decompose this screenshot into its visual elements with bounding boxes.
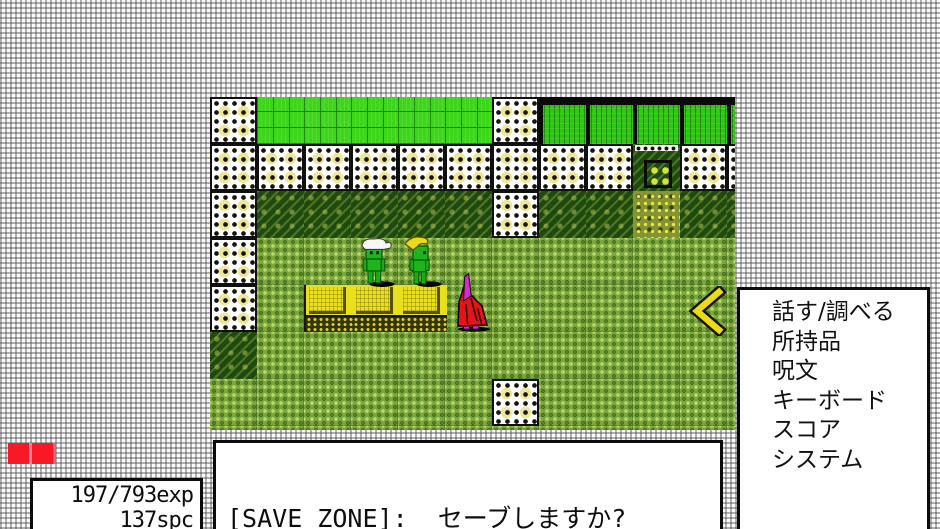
tile-wall	[210, 238, 257, 285]
tile-mid	[586, 238, 633, 285]
tile-table	[351, 285, 400, 332]
message-window: [SAVE ZONE]: セーブしますか?	[213, 440, 723, 529]
tile-dark	[398, 191, 445, 238]
menu-item-system[interactable]: システム	[740, 446, 927, 476]
tile-mid	[727, 332, 735, 379]
tile-mid	[257, 426, 304, 430]
tile-mid	[633, 332, 680, 379]
tile-mid	[586, 332, 633, 379]
tile-wall	[257, 144, 304, 191]
tile-dark	[210, 332, 257, 379]
menu-item-keyboard[interactable]: キーボード	[740, 387, 927, 417]
goblin-white-hair-sprite	[352, 237, 396, 287]
tile-hedge	[539, 97, 586, 144]
tile-wall	[210, 191, 257, 238]
tile-mid	[210, 379, 257, 426]
spc-value: 137spc	[33, 508, 200, 529]
tile-mid	[398, 426, 445, 430]
tile-mid	[680, 332, 727, 379]
tile-hedge	[586, 97, 633, 144]
tile-mid	[210, 426, 257, 430]
stats-window: 197/793exp 137spc	[30, 478, 203, 529]
tile-mid	[586, 379, 633, 426]
tile-mid	[492, 332, 539, 379]
tile-grass	[257, 97, 304, 144]
tile-dark	[586, 191, 633, 238]
tile-grass	[304, 97, 351, 144]
yellow-chevron-icon	[688, 286, 728, 336]
tile-speckle	[633, 191, 680, 238]
tile-mid	[539, 285, 586, 332]
tile-mid	[586, 285, 633, 332]
command-menu: 話す/調べる 所持品 呪文 キーボード スコア システム	[737, 287, 930, 529]
tile-wall	[304, 144, 351, 191]
hp-gauge-divider	[29, 443, 32, 464]
tile-mid	[351, 332, 398, 379]
tile-wall	[492, 191, 539, 238]
tile-mid	[727, 238, 735, 285]
goblin-yellow-horn-sprite	[398, 235, 444, 287]
tile-dark	[680, 191, 727, 238]
tile-mid	[304, 238, 351, 285]
desktop-background: 話す/調べる 所持品 呪文 キーボード スコア システム [SAVE ZONE]…	[0, 0, 940, 529]
tile-mid	[727, 426, 735, 430]
tile-grass	[398, 97, 445, 144]
tile-mid	[539, 238, 586, 285]
tile-mid	[633, 285, 680, 332]
tile-wall	[586, 144, 633, 191]
tile-wall	[727, 144, 735, 191]
tile-wall	[492, 379, 539, 426]
tile-door	[633, 144, 680, 191]
tile-dark	[539, 191, 586, 238]
tile-table	[304, 285, 353, 332]
tile-hedge	[727, 97, 735, 144]
tile-mid	[492, 238, 539, 285]
tile-wall	[445, 144, 492, 191]
tile-wall	[210, 144, 257, 191]
menu-item-score[interactable]: スコア	[740, 416, 927, 446]
tile-mid	[445, 379, 492, 426]
tile-mid	[539, 426, 586, 430]
tile-mid	[304, 426, 351, 430]
tile-wall	[539, 144, 586, 191]
tile-mid	[257, 379, 304, 426]
tile-wall	[210, 285, 257, 332]
tile-wall	[398, 144, 445, 191]
menu-item-spells[interactable]: 呪文	[740, 357, 927, 387]
tile-table	[398, 285, 447, 332]
tile-mid	[492, 426, 539, 430]
map-viewport[interactable]	[210, 97, 735, 430]
tile-wall	[351, 144, 398, 191]
tile-mid	[680, 426, 727, 430]
tile-grass	[351, 97, 398, 144]
red-creature-sprite	[444, 272, 494, 332]
tile-mid	[445, 426, 492, 430]
tile-wall	[492, 144, 539, 191]
tile-mid	[727, 379, 735, 426]
tile-mid	[351, 379, 398, 426]
tile-mid	[633, 379, 680, 426]
tile-mid	[398, 379, 445, 426]
save-prompt-text: [SAVE ZONE]: セーブしますか?	[227, 499, 626, 529]
tile-mid	[304, 379, 351, 426]
tile-mid	[680, 238, 727, 285]
tile-hedge	[680, 97, 727, 144]
tile-dark	[351, 191, 398, 238]
tile-mid	[539, 379, 586, 426]
menu-item-talk-examine[interactable]: 話す/調べる	[740, 298, 927, 328]
tile-mid	[398, 332, 445, 379]
hp-gauge-bar	[8, 443, 56, 464]
tile-mid	[586, 426, 633, 430]
tile-mid	[492, 285, 539, 332]
tile-mid	[539, 332, 586, 379]
tile-mid	[445, 332, 492, 379]
tile-mid	[257, 332, 304, 379]
tile-wall	[492, 97, 539, 144]
tile-dark	[445, 191, 492, 238]
tile-grass	[445, 97, 492, 144]
exp-value: 197/793exp	[33, 483, 200, 508]
tile-dark	[304, 191, 351, 238]
tile-mid	[257, 238, 304, 285]
tile-mid	[257, 285, 304, 332]
tile-mid	[633, 238, 680, 285]
tile-mid	[633, 426, 680, 430]
tile-mid	[727, 285, 735, 332]
menu-item-inventory[interactable]: 所持品	[740, 328, 927, 358]
tile-wall	[210, 97, 257, 144]
tile-mid	[351, 426, 398, 430]
tile-dark	[257, 191, 304, 238]
tile-hedge	[633, 97, 680, 144]
tile-dark	[727, 191, 735, 238]
hp-gauge-edge	[53, 443, 56, 464]
tile-mid	[680, 379, 727, 426]
tile-wall	[680, 144, 727, 191]
tile-mid	[304, 332, 351, 379]
